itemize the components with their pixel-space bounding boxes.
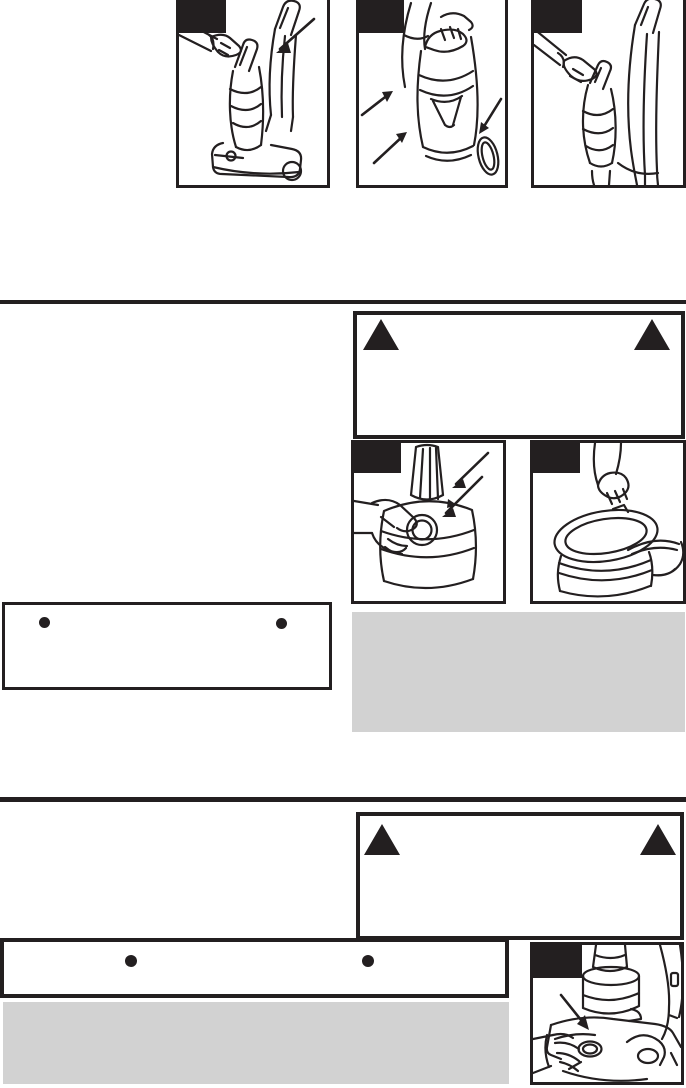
figure-box-lift-lid: [530, 440, 686, 604]
bullet-icon: [362, 955, 374, 967]
figure-box-remove-filter: [351, 440, 506, 604]
manual-page: [0, 0, 686, 1088]
figure-box-detach-dirt-cup: [176, 0, 330, 188]
warning-triangle-icon: [640, 824, 676, 855]
callout-box: [2, 602, 332, 690]
warning-triangle-icon: [364, 824, 400, 855]
section-divider: [0, 300, 686, 304]
note-panel: [352, 612, 685, 732]
bullet-icon: [276, 618, 287, 629]
figure-box-hold-dirt-cup: [356, 0, 508, 188]
step-number-badge: [176, 0, 226, 33]
bullet-icon: [125, 955, 137, 967]
warning-box: [356, 812, 684, 940]
figure-box-base-latch: [530, 942, 684, 1085]
warning-triangle-icon: [363, 319, 399, 350]
step-number-badge: [533, 0, 582, 33]
warning-triangle-icon: [634, 319, 670, 350]
warning-box: [353, 311, 685, 439]
note-panel: [3, 1002, 509, 1084]
callout-box: [0, 938, 509, 998]
step-number-badge: [530, 442, 580, 473]
step-number-badge: [351, 442, 401, 473]
bullet-icon: [39, 617, 50, 628]
section-divider: [0, 797, 686, 802]
step-number-badge: [532, 944, 582, 978]
step-number-badge: [356, 0, 404, 33]
figure-box-reattach-dirt-cup: [531, 0, 686, 188]
